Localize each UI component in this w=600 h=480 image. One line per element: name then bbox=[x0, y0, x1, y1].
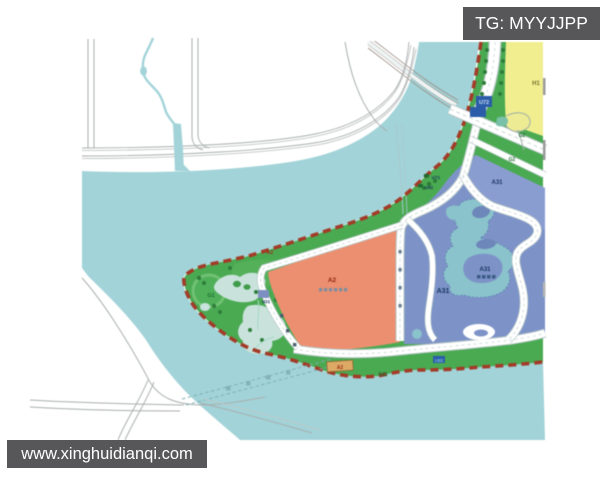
svg-text:A31: A31 bbox=[491, 180, 503, 186]
svg-text:A31: A31 bbox=[437, 288, 450, 295]
svg-text:U72: U72 bbox=[479, 100, 489, 106]
svg-text:U71: U71 bbox=[432, 175, 441, 180]
svg-text:U21: U21 bbox=[262, 299, 271, 304]
svg-text:U92: U92 bbox=[425, 185, 434, 190]
svg-text:G1: G1 bbox=[207, 293, 214, 299]
svg-text:G2: G2 bbox=[509, 157, 516, 163]
svg-text:A31: A31 bbox=[479, 267, 491, 273]
svg-text:U92: U92 bbox=[435, 358, 444, 363]
svg-text:A2: A2 bbox=[337, 365, 344, 371]
svg-text:A2: A2 bbox=[267, 250, 274, 256]
svg-text:S41: S41 bbox=[379, 372, 388, 378]
svg-text:A2: A2 bbox=[328, 277, 337, 284]
svg-text:G2: G2 bbox=[519, 133, 526, 139]
svg-text:H1: H1 bbox=[532, 81, 540, 87]
